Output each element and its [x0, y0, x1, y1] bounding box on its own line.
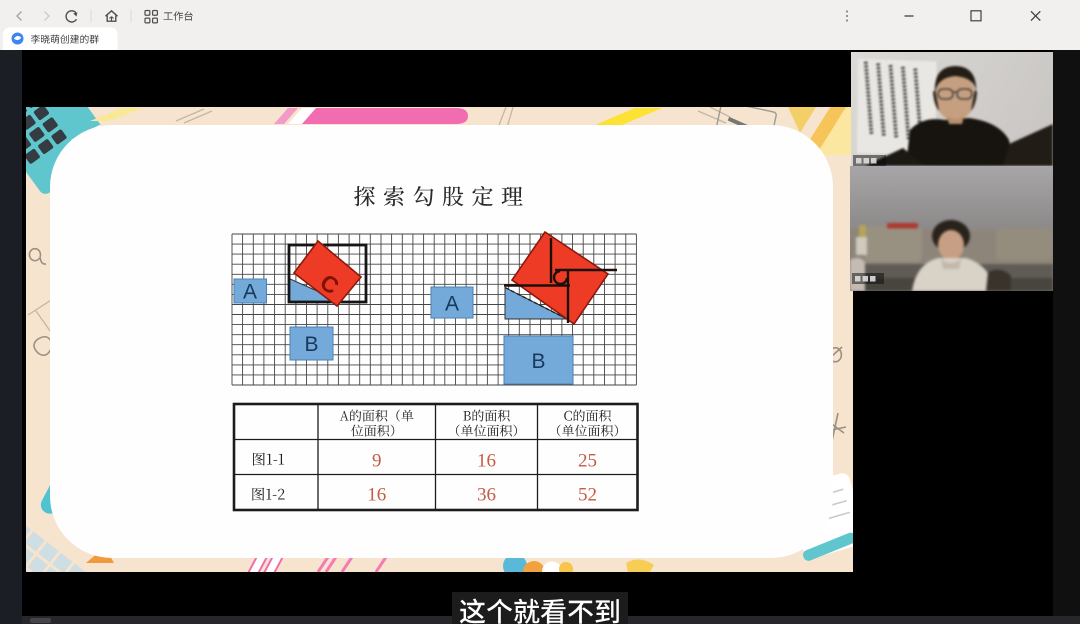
svg-text:25: 25 — [578, 451, 597, 472]
svg-text:B: B — [531, 350, 545, 373]
svg-text:16: 16 — [367, 485, 386, 506]
svg-text:9: 9 — [372, 451, 382, 472]
svg-text:52: 52 — [578, 485, 597, 506]
svg-text:A: A — [445, 293, 459, 316]
svg-text:36: 36 — [477, 485, 496, 506]
svg-text:B: B — [304, 333, 318, 356]
svg-text:16: 16 — [477, 451, 496, 472]
svg-text:A: A — [243, 281, 257, 304]
